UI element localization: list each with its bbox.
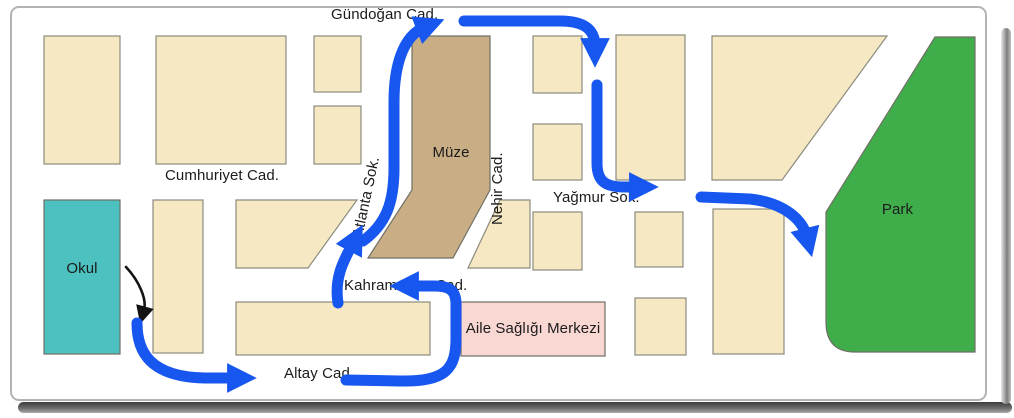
- place-label-muze: Müze: [412, 144, 490, 161]
- page-right-shadow: [1001, 28, 1011, 404]
- street-label-yagmur: Yağmur Sok.: [553, 189, 640, 206]
- street-label-cumhuriyet: Cumhuriyet Cad.: [165, 167, 279, 184]
- street-label-kahramanlar: Kahramanlar Cad.: [344, 277, 467, 294]
- labels-layer: Gündoğan Cad. Cumhuriyet Cad. Atlanta So…: [0, 0, 1014, 418]
- page-bottom-shadow: [18, 402, 1012, 413]
- map-screenshot: Gündoğan Cad. Cumhuriyet Cad. Atlanta So…: [0, 0, 1014, 418]
- place-label-okul: Okul: [44, 260, 120, 277]
- place-label-aile-sagligi: Aile Sağlığı Merkezi: [461, 320, 605, 337]
- street-label-atlanta: Atlanta Sok.: [349, 155, 383, 239]
- street-label-altay: Altay Cad.: [284, 365, 354, 382]
- street-label-nehir: Nehir Cad.: [489, 152, 506, 225]
- place-label-park: Park: [845, 201, 950, 218]
- street-label-gundogan: Gündoğan Cad.: [331, 6, 438, 23]
